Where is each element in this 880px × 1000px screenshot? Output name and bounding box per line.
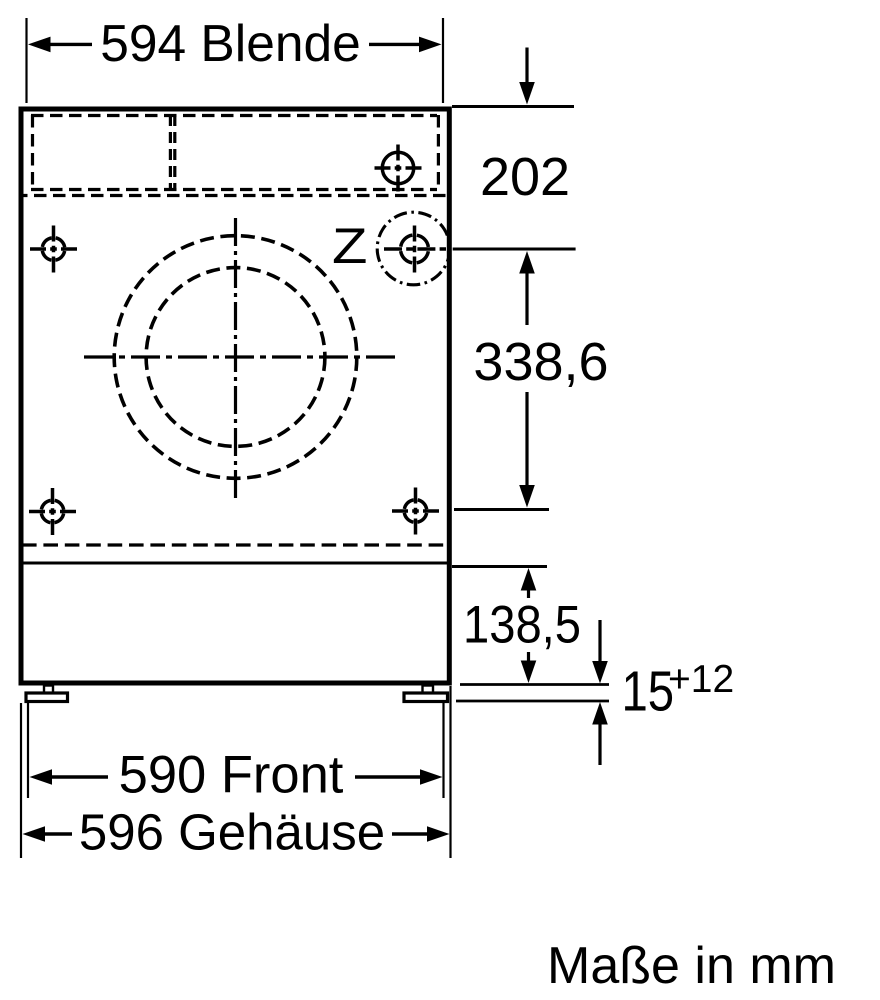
svg-text:594 Blende: 594 Blende — [100, 14, 361, 72]
svg-text:15: 15 — [622, 660, 675, 723]
svg-text:590 Front: 590 Front — [119, 746, 344, 805]
svg-text:Maße in mm: Maße in mm — [547, 937, 836, 995]
svg-text:+12: +12 — [668, 658, 734, 701]
svg-text:338,6: 338,6 — [473, 332, 608, 392]
svg-text:138,5: 138,5 — [463, 595, 581, 654]
svg-text:Z: Z — [332, 219, 367, 274]
svg-text:596 Gehäuse: 596 Gehäuse — [79, 804, 385, 861]
svg-text:202: 202 — [480, 147, 570, 207]
